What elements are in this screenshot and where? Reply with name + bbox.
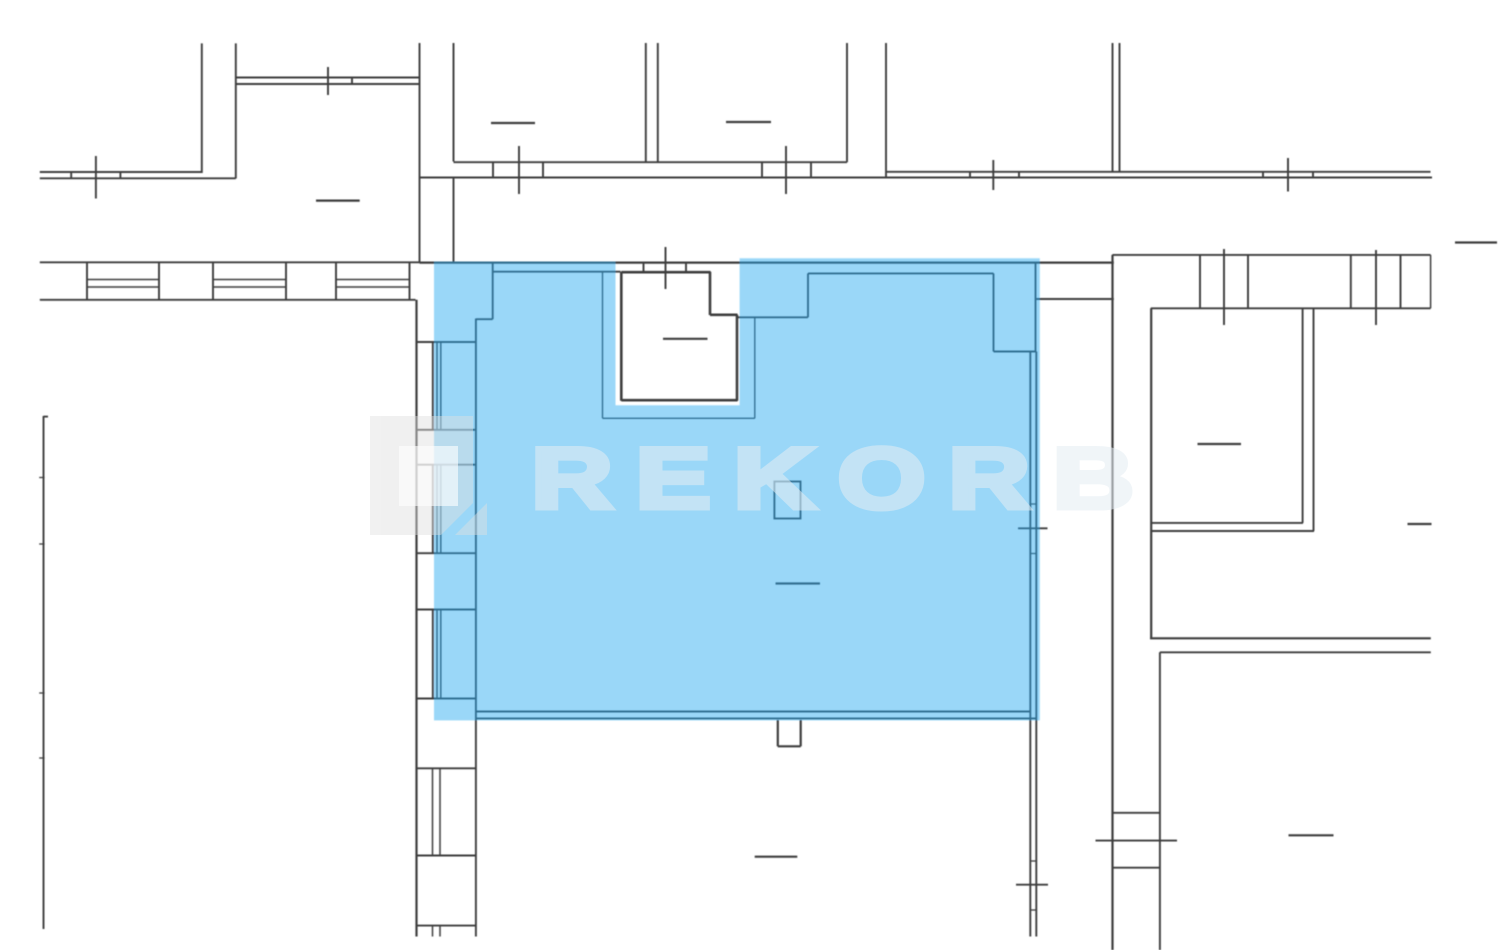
svg-text:REKORB: REKORB bbox=[531, 431, 1157, 527]
